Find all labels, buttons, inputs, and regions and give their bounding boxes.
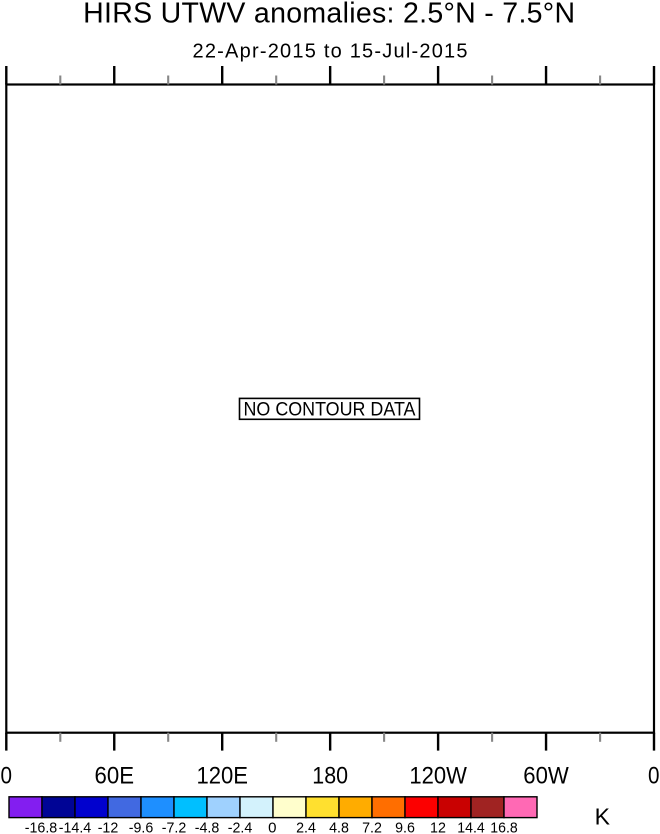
svg-text:120E: 120E — [196, 763, 248, 790]
svg-text:7.2: 7.2 — [362, 819, 382, 834]
svg-text:22-Apr-2015 to 15-Jul-2015: 22-Apr-2015 to 15-Jul-2015 — [193, 40, 468, 62]
svg-text:K: K — [595, 803, 611, 829]
svg-text:0: 0 — [648, 763, 660, 790]
svg-text:2.4: 2.4 — [296, 819, 316, 834]
svg-text:14.4: 14.4 — [457, 819, 484, 834]
svg-text:-14.4: -14.4 — [59, 819, 92, 834]
svg-text:NO CONTOUR DATA: NO CONTOUR DATA — [244, 400, 416, 421]
svg-text:9.6: 9.6 — [395, 819, 415, 834]
svg-text:180: 180 — [312, 763, 348, 790]
svg-text:-16.8: -16.8 — [25, 819, 58, 834]
svg-text:0: 0 — [1, 763, 13, 790]
svg-text:-4.8: -4.8 — [195, 819, 220, 834]
svg-text:4.8: 4.8 — [329, 819, 349, 834]
svg-text:-12: -12 — [98, 819, 119, 834]
svg-text:HIRS UTWV anomalies: 2.5°N - 7: HIRS UTWV anomalies: 2.5°N - 7.5°N — [83, 0, 575, 29]
svg-text:0: 0 — [268, 819, 276, 834]
svg-text:12: 12 — [430, 819, 446, 834]
svg-text:60W: 60W — [523, 763, 569, 790]
svg-text:16.8: 16.8 — [490, 819, 517, 834]
svg-text:-9.6: -9.6 — [129, 819, 154, 834]
svg-text:60E: 60E — [95, 763, 135, 790]
svg-text:120W: 120W — [409, 763, 467, 790]
svg-text:-7.2: -7.2 — [162, 819, 187, 834]
svg-text:-2.4: -2.4 — [228, 819, 253, 834]
